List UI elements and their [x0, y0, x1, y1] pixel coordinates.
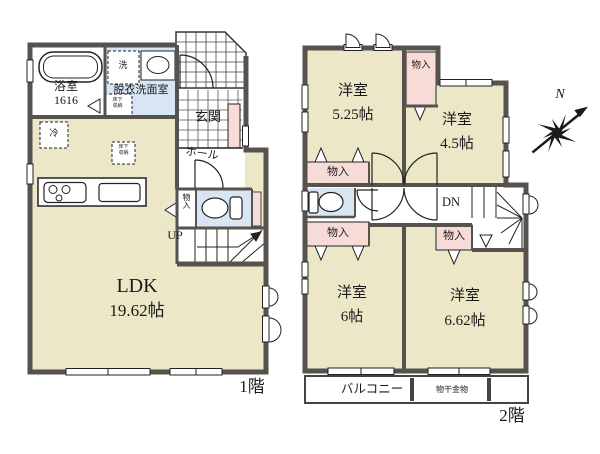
room-6-label: 洋室: [312, 285, 392, 302]
ldk-floor: [32, 117, 177, 371]
entrance-label: 玄関: [183, 110, 233, 125]
kitchen-sink-icon: [99, 184, 140, 202]
bath-size-label: 1616: [46, 94, 86, 108]
toilet-tank-icon: [230, 197, 242, 219]
floor1-caption: 1階: [229, 377, 275, 397]
washer-label: 洗: [113, 60, 133, 70]
room-45-size: 4.5帖: [417, 136, 497, 153]
floor-storage-label: 床下収納: [111, 98, 124, 110]
compass-arrowhead: [573, 102, 588, 118]
room-525-size: 5.25帖: [313, 107, 393, 124]
bath-door-icon: [88, 99, 100, 113]
fridge-label: 冷: [44, 128, 64, 138]
room-662-size: 6.62帖: [425, 313, 505, 330]
room-45-label: 洋室: [417, 112, 497, 129]
floor-storage-label: 床下収納: [117, 145, 130, 157]
closet-label-1f: 物入: [182, 193, 190, 209]
balcony-label: バルコニー: [322, 382, 422, 396]
floor2-caption: 2階: [489, 406, 535, 426]
closet-stair-label: 物入: [424, 230, 484, 243]
compass-north-label: N: [549, 87, 571, 103]
compass-needle: [532, 100, 582, 164]
ldk-floor: [177, 266, 266, 371]
entrance-porch: [176, 32, 246, 88]
room-662-label: 洋室: [425, 288, 505, 305]
bath-label: 浴室: [46, 80, 86, 94]
up-label: UP: [160, 229, 190, 243]
toilet-icon: [202, 198, 228, 218]
closet-top-label: 物入: [401, 61, 441, 72]
toilet-icon: [319, 193, 343, 212]
balcony-divider: [487, 378, 491, 401]
dn-label: DN: [431, 195, 471, 209]
room-6-size: 6帖: [312, 309, 392, 326]
floorplan-drawing: [0, 0, 600, 454]
room-525-label: 洋室: [313, 83, 393, 100]
washroom-label: 脱衣洗面室: [106, 84, 176, 97]
floorplan-page: 浴室 1616 脱衣洗面室 洗 床下収納 冷 床下収納 玄関 ホール 物入 UP…: [0, 0, 600, 454]
toilet-tank-icon: [309, 192, 318, 213]
drying-hardware-label: 物干金物: [422, 385, 482, 394]
closet-mid-label: 物入: [308, 166, 368, 179]
sink-bowl-icon: [147, 57, 169, 74]
ldk-size-label: 19.62帖: [87, 301, 187, 321]
toilet-door-1f: [252, 192, 261, 226]
closet-low-label: 物入: [308, 227, 368, 240]
toilet-door-arc: [357, 190, 378, 211]
bathtub-inner: [44, 56, 98, 78]
ldk-label: LDK: [87, 275, 187, 298]
